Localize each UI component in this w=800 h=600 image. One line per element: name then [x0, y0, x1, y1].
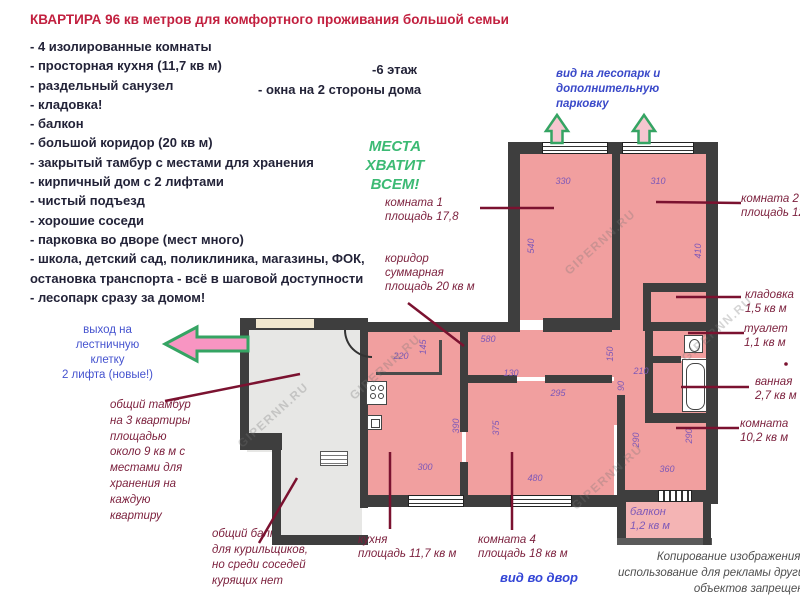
exit-note: выход на лестничную клетку 2 лифта (новы…	[45, 323, 170, 383]
dim-room2-width: 310	[643, 176, 673, 186]
wall-segment	[460, 330, 468, 432]
balcony-label: балкон 1,2 кв м	[630, 505, 670, 533]
dim-room3-right: 290	[684, 421, 694, 451]
wall-segment	[460, 462, 468, 495]
wall-segment	[368, 322, 510, 332]
page-title: КВАРТИРА 96 кв метров для комфортного пр…	[30, 12, 770, 27]
dim-room4-width: 480	[520, 473, 550, 483]
storage-fill	[649, 290, 708, 324]
dot	[784, 362, 788, 366]
room-4-label: комната 4 площадь 18 кв м	[478, 533, 568, 561]
wall-segment	[643, 283, 706, 292]
wall-segment	[617, 538, 712, 545]
kitchen-label: кухня площадь 11,7 кв м	[358, 533, 456, 561]
slogan: МЕСТА ХВАТИТ ВСЕМ!	[338, 137, 452, 194]
dim-kitchen-width: 300	[410, 462, 440, 472]
window	[510, 495, 572, 507]
dim-room3-width: 360	[652, 464, 682, 474]
wall-segment	[508, 142, 520, 332]
wall-segment	[543, 318, 612, 332]
dim-door-width: 130	[496, 368, 526, 378]
wall-segment	[617, 395, 625, 495]
dim-bath-step: 90	[616, 374, 626, 398]
dim-nook-height: 145	[418, 332, 428, 362]
wall-segment	[439, 340, 442, 375]
wall-segment	[612, 154, 620, 330]
feature-item: - просторная кухня (11,7 кв м)	[30, 56, 430, 75]
storage-label: кладовка 1,5 кв м	[745, 288, 794, 316]
arrow-left-icon	[165, 327, 248, 361]
dim-room1-height: 540	[526, 231, 536, 261]
tambour-note: общий тамбур на 3 квартиры площадью окол…	[110, 398, 191, 524]
room-2-label: комната 2 площадь 12	[741, 192, 800, 220]
wall-segment	[645, 413, 706, 423]
wall-segment	[272, 450, 281, 545]
window	[622, 142, 694, 154]
feature-item: - чистый подъезд	[30, 191, 430, 210]
wall-segment	[703, 502, 711, 545]
copyright-note: Копирование изображения и использование …	[600, 549, 800, 597]
wall-segment	[508, 318, 516, 332]
bathtub-icon	[682, 359, 707, 412]
arrow-up-icon	[546, 115, 568, 143]
dim-room4-height: 375	[491, 413, 501, 443]
wall-segment	[653, 356, 681, 363]
wall-segment	[545, 375, 612, 383]
wall-segment	[645, 331, 653, 423]
balcony-window	[658, 490, 692, 502]
sink-icon	[367, 415, 382, 430]
toilet-label: туалет 1,1 кв м	[744, 322, 788, 350]
dim-corridor-width: 580	[473, 334, 503, 344]
feature-item: - кладовка!	[30, 95, 430, 114]
dim-room2-height: 410	[693, 236, 703, 266]
windows-note: - окна на 2 стороны дома	[258, 82, 421, 97]
wall-accent	[256, 319, 314, 328]
feature-item: - парковка во дворе (мест много)	[30, 230, 430, 249]
window	[408, 495, 464, 507]
arrow-up-icon	[633, 115, 655, 143]
dim-corridor-segment: 295	[543, 388, 573, 398]
park-view-note: вид на лесопарк и дополнительную парковк…	[556, 67, 660, 112]
room-3-label: комната 10,2 кв м	[740, 417, 788, 445]
yard-view-note: вид во двор	[500, 570, 578, 585]
corridor-label: коридор суммарная площадь 20 кв м	[385, 252, 475, 294]
floor-note: -6 этаж	[372, 62, 417, 77]
window	[542, 142, 608, 154]
dim-corridor-right: 150	[605, 339, 615, 369]
wall-segment	[272, 535, 368, 545]
dim-room1-width: 330	[548, 176, 578, 186]
room-1-label: комната 1 площадь 17,8	[385, 196, 459, 224]
feature-item: - школа, детский сад, поликлиника, магаз…	[30, 249, 430, 288]
flyer-canvas: КВАРТИРА 96 кв метров для комфортного пр…	[0, 0, 800, 600]
feature-item: - хорошие соседи	[30, 211, 430, 230]
dim-bath-width: 210	[626, 366, 656, 376]
steps-hatch	[320, 451, 348, 466]
feature-item: - лесопарк сразу за домом!	[30, 288, 430, 307]
dim-kitchen-height: 390	[451, 411, 461, 441]
wall-segment	[645, 322, 706, 331]
feature-item: - 4 изолированные комнаты	[30, 37, 430, 56]
bathroom-label: ванная 2,7 кв м	[755, 375, 797, 403]
feature-item: - балкон	[30, 114, 430, 133]
